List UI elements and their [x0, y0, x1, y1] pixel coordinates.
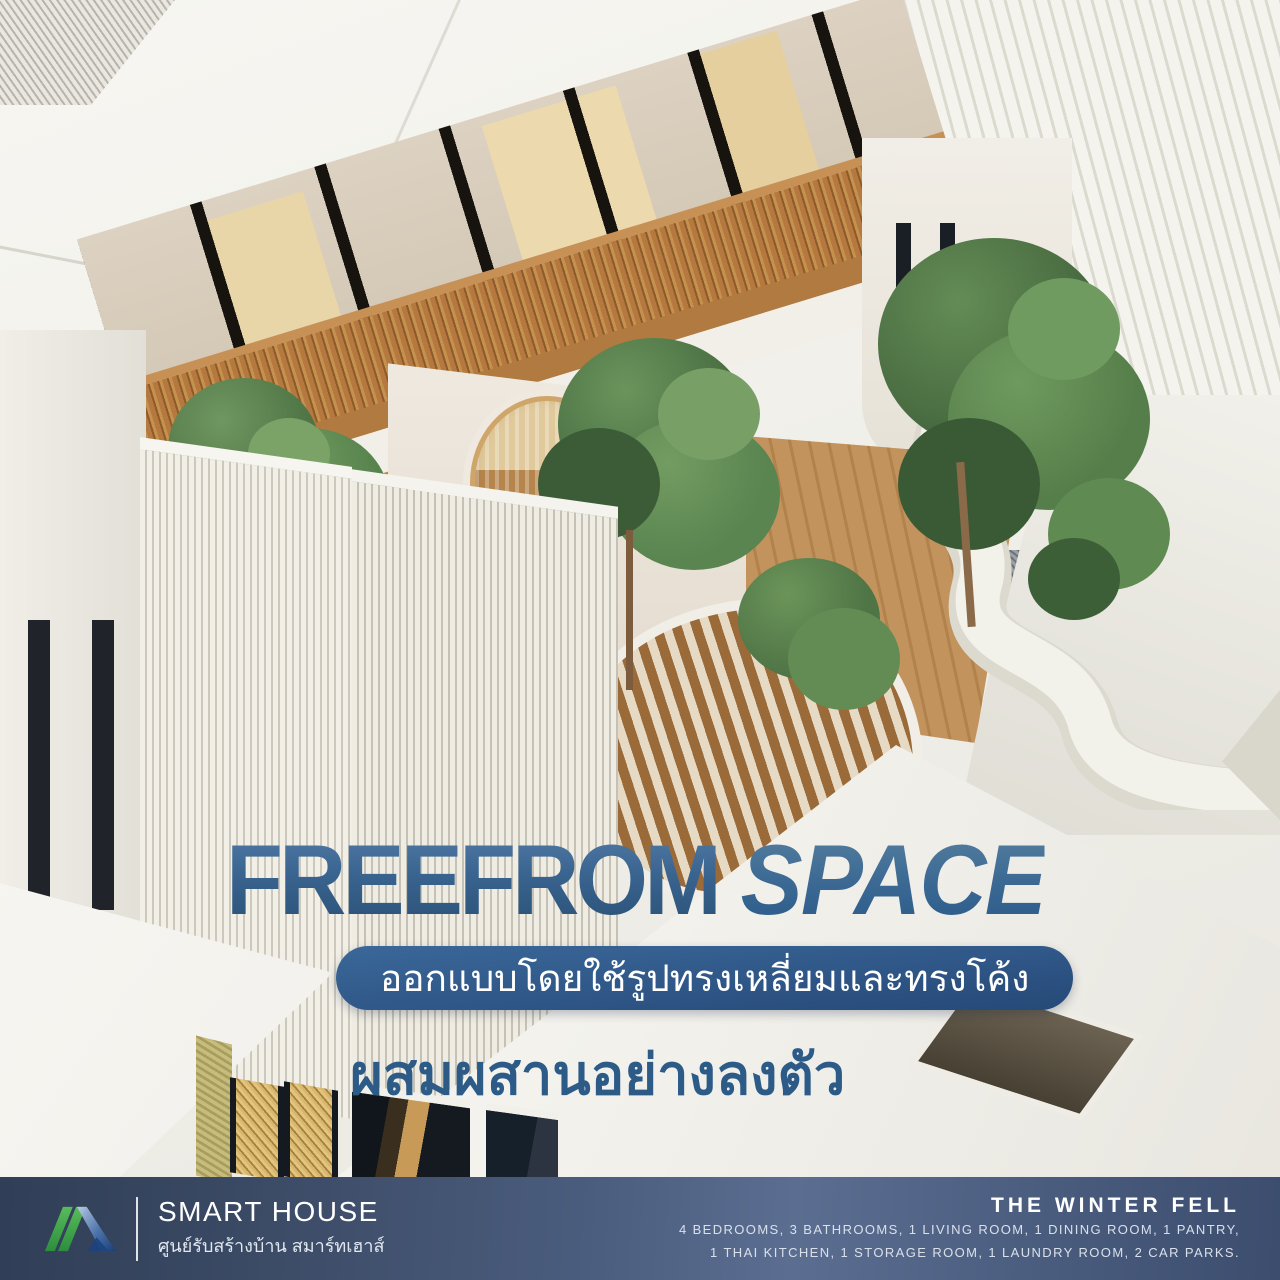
textured-glass-panel	[230, 1077, 284, 1182]
brand-block: SMART HOUSE ศูนย์รับสร้างบ้าน สมาร์ทเฮาส…	[158, 1197, 385, 1260]
poster: FREEFROMSPACE ออกแบบโดยใช้รูปทรงเหลี่ยมแ…	[0, 0, 1280, 1280]
left-facade	[0, 330, 146, 980]
window-slot	[92, 620, 114, 910]
render-shape	[1008, 278, 1120, 380]
render-shape	[788, 608, 900, 710]
footer-divider	[136, 1197, 138, 1261]
tagline-pill-text: ออกแบบโดยใช้รูปทรงเหลี่ยมและทรงโค้ง	[380, 949, 1029, 1008]
project-block: THE WINTER FELL 4 BEDROOMS, 3 BATHROOMS,…	[679, 1192, 1240, 1265]
tagline-pill: ออกแบบโดยใช้รูปทรงเหลี่ยมและทรงโค้ง	[336, 946, 1073, 1010]
render-shape	[1028, 538, 1120, 620]
smart-house-logo-icon	[40, 1198, 122, 1260]
render-shape	[658, 368, 760, 460]
brand-subtitle: ศูนย์รับสร้างบ้าน สมาร์ทเฮาส์	[158, 1231, 385, 1260]
project-specs-line2: 1 THAI KITCHEN, 1 STORAGE ROOM, 1 LAUNDR…	[679, 1242, 1240, 1265]
headline-word-italic: SPACE	[741, 828, 1045, 932]
grass-strip	[196, 1036, 232, 1185]
window-slot	[28, 620, 50, 910]
project-name: THE WINTER FELL	[679, 1192, 1240, 1219]
headline: FREEFROMSPACE	[226, 828, 1045, 932]
project-specs-line1: 4 BEDROOMS, 3 BATHROOMS, 1 LIVING ROOM, …	[679, 1219, 1240, 1242]
headline-word-bold: FREEFROM	[226, 828, 718, 932]
textured-glass-panel	[284, 1081, 338, 1186]
render-shape	[626, 530, 633, 690]
brand-bar: SMART HOUSE ศูนย์รับสร้างบ้าน สมาร์ทเฮาส…	[0, 1177, 1280, 1280]
tagline-emphasis: ผสมผสานอย่างลงตัว	[350, 1030, 845, 1119]
brand-name: SMART HOUSE	[158, 1197, 385, 1228]
